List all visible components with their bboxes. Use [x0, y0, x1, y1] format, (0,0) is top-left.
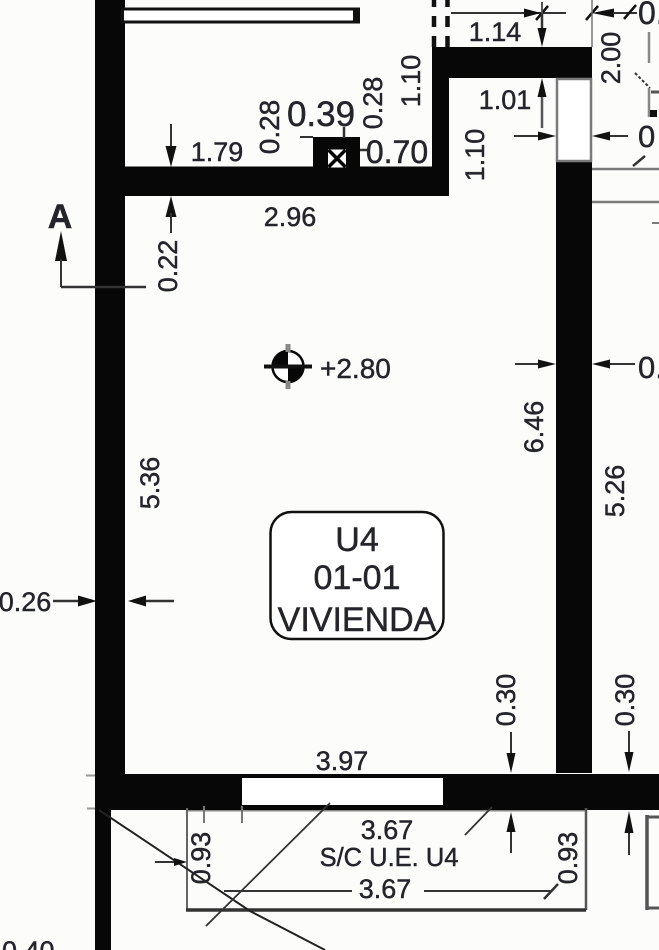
svg-text:0.: 0. [638, 350, 659, 385]
svg-text:0.93: 0.93 [186, 832, 216, 885]
svg-text:0.: 0. [638, 0, 659, 31]
svg-text:+2.80: +2.80 [320, 353, 391, 384]
svg-text:6.46: 6.46 [519, 401, 549, 454]
svg-text:3.97: 3.97 [316, 746, 369, 776]
svg-text:3.67: 3.67 [359, 874, 412, 904]
svg-text:0.30: 0.30 [491, 674, 521, 727]
svg-text:0.28: 0.28 [358, 77, 388, 130]
svg-text:1.14: 1.14 [469, 17, 522, 47]
svg-text:0.40: 0.40 [2, 936, 55, 950]
svg-text:5.36: 5.36 [135, 457, 165, 510]
svg-text:1.01: 1.01 [479, 85, 532, 115]
svg-text:01-01: 01-01 [314, 559, 401, 597]
svg-text:0.28: 0.28 [254, 100, 285, 155]
svg-text:S/C U.E. U4: S/C U.E. U4 [320, 844, 459, 872]
svg-text:1.79: 1.79 [191, 137, 244, 167]
svg-text:2.96: 2.96 [264, 202, 317, 232]
svg-text:0.26: 0.26 [0, 587, 51, 617]
svg-text:3.67: 3.67 [361, 815, 414, 845]
svg-text:U4: U4 [335, 521, 378, 559]
svg-text:5.26: 5.26 [600, 465, 630, 518]
svg-text:2.00: 2.00 [596, 32, 626, 85]
svg-text:1.10: 1.10 [396, 55, 426, 108]
svg-text:0: 0 [638, 119, 655, 154]
svg-text:0.30: 0.30 [610, 674, 640, 727]
svg-text:0.70: 0.70 [366, 134, 428, 170]
svg-text:A: A [48, 198, 73, 236]
svg-text:VIVIENDA: VIVIENDA [278, 601, 437, 639]
svg-text:0.22: 0.22 [153, 240, 183, 293]
svg-text:1.10: 1.10 [460, 129, 490, 182]
svg-text:0.93: 0.93 [553, 832, 583, 885]
